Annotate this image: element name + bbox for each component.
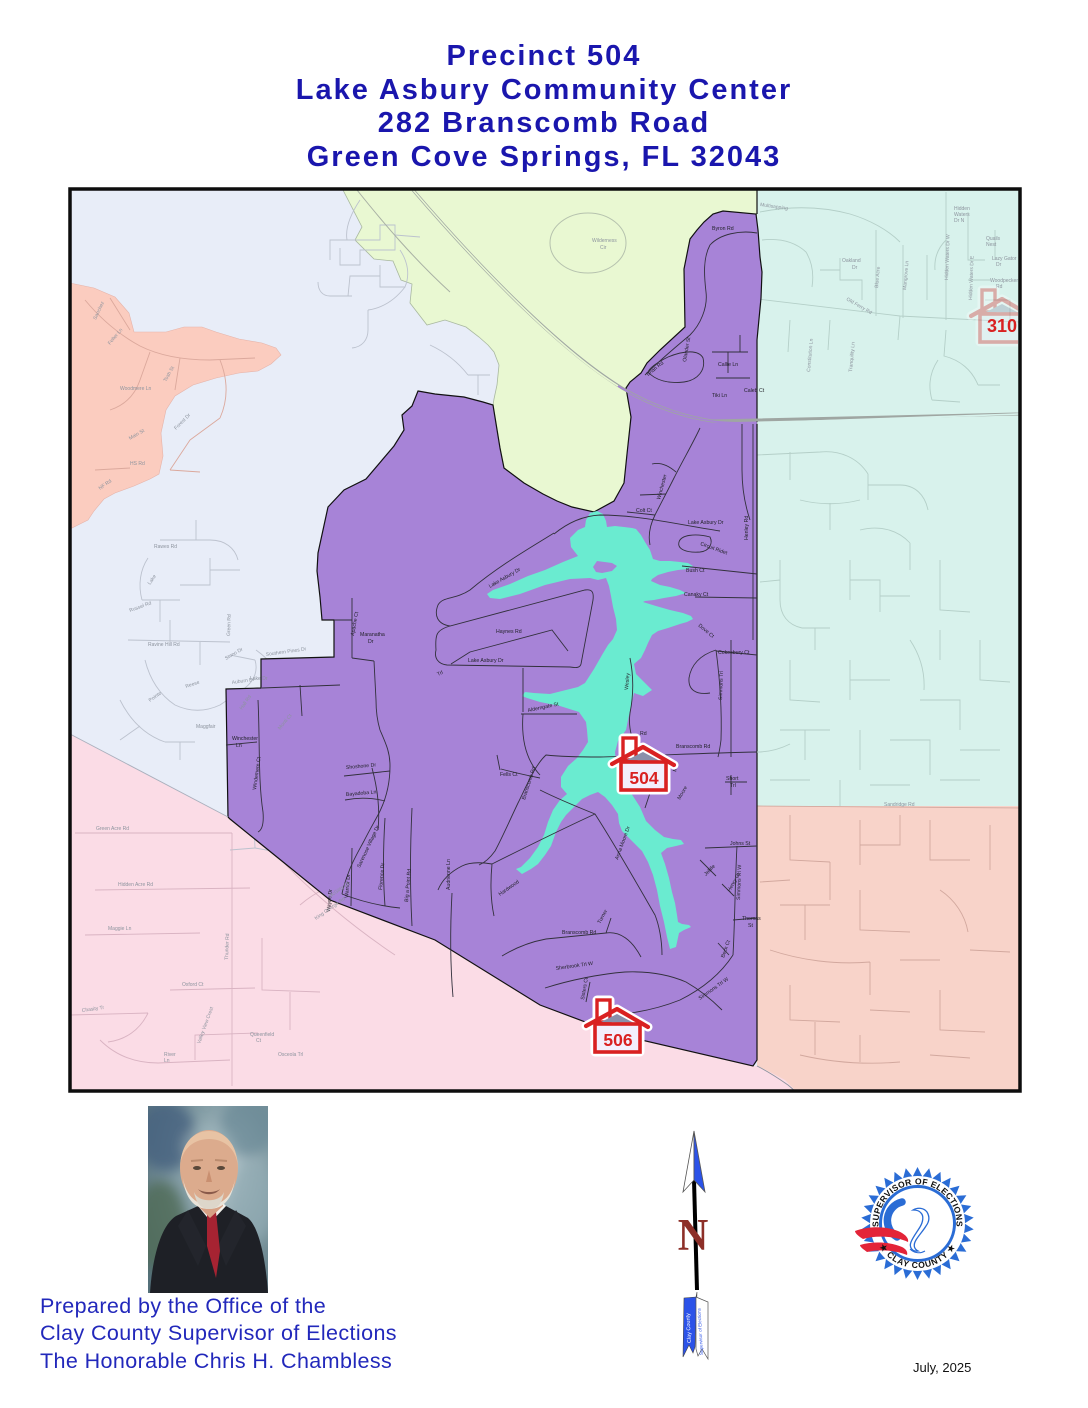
- svg-text:Audrienne Ln: Audrienne Ln: [446, 859, 452, 890]
- svg-text:Ct: Ct: [256, 1038, 262, 1044]
- svg-text:Short: Short: [726, 776, 739, 782]
- svg-text:Ln: Ln: [164, 1058, 170, 1064]
- svg-text:Caleb Ct: Caleb Ct: [744, 388, 765, 394]
- svg-text:Branscomb Rd: Branscomb Rd: [562, 930, 596, 936]
- svg-text:Woodpecker: Woodpecker: [990, 278, 1018, 284]
- svg-text:Rawes Rd: Rawes Rd: [154, 544, 177, 550]
- svg-text:Bush Ct: Bush Ct: [686, 568, 705, 574]
- svg-text:Dr N: Dr N: [954, 218, 965, 224]
- svg-text:Wilderness: Wilderness: [592, 238, 617, 244]
- svg-text:Thunder Rd: Thunder Rd: [224, 933, 231, 960]
- svg-text:Oakland: Oakland: [842, 258, 861, 264]
- svg-text:Maggie Ln: Maggie Ln: [108, 926, 132, 932]
- svg-text:Ravine Hill Rd: Ravine Hill Rd: [148, 642, 180, 648]
- svg-text:Tiki Ln: Tiki Ln: [712, 393, 727, 399]
- svg-text:Dr: Dr: [368, 639, 374, 645]
- svg-text:Dr: Dr: [852, 265, 858, 271]
- svg-text:Green Rd: Green Rd: [226, 614, 233, 636]
- svg-text:Cokesbury Ct: Cokesbury Ct: [718, 650, 750, 656]
- svg-text:310: 310: [987, 316, 1017, 336]
- svg-text:N: N: [678, 1209, 709, 1260]
- svg-text:Henley Rd: Henley Rd: [744, 516, 750, 540]
- svg-text:Lake Asbury Dr: Lake Asbury Dr: [468, 658, 504, 664]
- svg-text:Rd: Rd: [640, 731, 647, 737]
- svg-text:Simmons Trl: Simmons Trl: [718, 671, 725, 700]
- svg-text:HS Rd: HS Rd: [130, 461, 145, 467]
- svg-text:504: 504: [629, 768, 658, 788]
- svg-text:506: 506: [603, 1030, 632, 1050]
- svg-text:Haynes Rd: Haynes Rd: [496, 629, 522, 635]
- svg-text:Woodmere Ln: Woodmere Ln: [120, 386, 152, 392]
- svg-text:Dr: Dr: [996, 262, 1002, 268]
- svg-text:Sandridge Rd: Sandridge Rd: [884, 802, 915, 808]
- svg-text:Lake Asbury Dr: Lake Asbury Dr: [688, 520, 724, 526]
- svg-text:Fells Ct: Fells Ct: [500, 772, 518, 778]
- svg-text:Maggfair: Maggfair: [196, 724, 216, 730]
- svg-text:Ln: Ln: [236, 743, 242, 749]
- svg-text:Colt Ct: Colt Ct: [636, 508, 652, 514]
- svg-text:Hidden Acre Rd: Hidden Acre Rd: [118, 882, 153, 888]
- svg-text:Cir: Cir: [600, 245, 607, 251]
- svg-text:Branscomb Rd: Branscomb Rd: [676, 744, 710, 750]
- svg-text:Oxford Ct: Oxford Ct: [182, 982, 204, 988]
- svg-text:Osceola Trl: Osceola Trl: [278, 1052, 303, 1058]
- svg-text:Thomas: Thomas: [742, 916, 761, 922]
- svg-text:Johns St: Johns St: [730, 841, 751, 847]
- svg-text:Canaky Ct: Canaky Ct: [684, 592, 709, 598]
- svg-text:Trl: Trl: [730, 783, 736, 789]
- svg-text:Queenfield: Queenfield: [250, 1032, 274, 1038]
- svg-text:Maranatha: Maranatha: [360, 632, 385, 638]
- svg-text:Byron Rd: Byron Rd: [712, 226, 734, 232]
- svg-text:Winchester: Winchester: [232, 736, 258, 742]
- svg-text:Nest: Nest: [986, 242, 997, 248]
- svg-text:Callie Ln: Callie Ln: [718, 362, 738, 368]
- svg-text:St: St: [748, 923, 753, 929]
- svg-text:Green Acre Rd: Green Acre Rd: [96, 826, 129, 832]
